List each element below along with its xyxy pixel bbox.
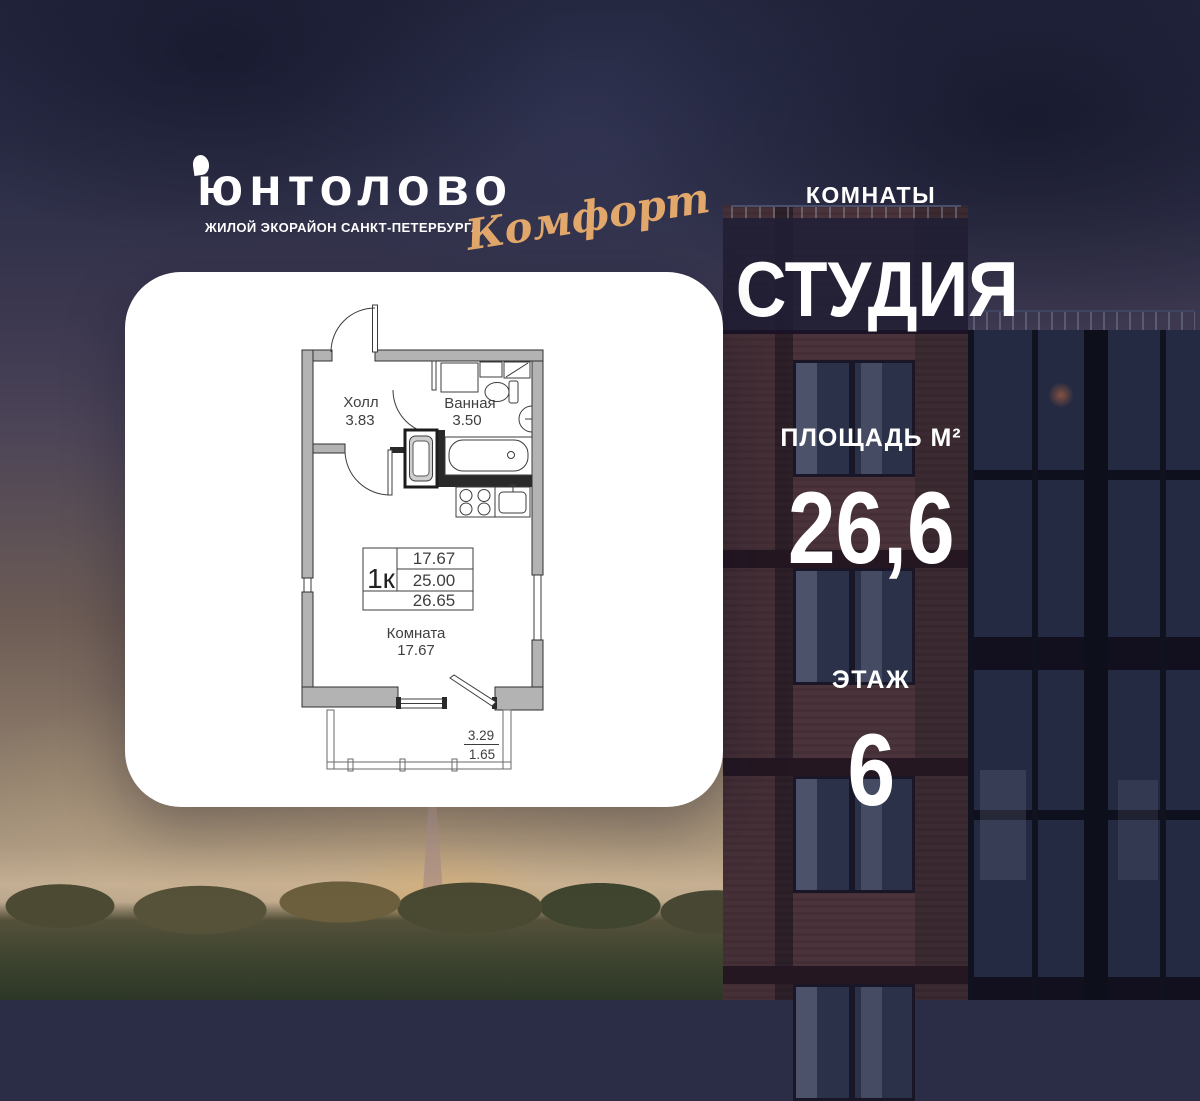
floorplan-card: Холл 3.83 Ванная 3.50 Комната 17.67 1к 1… [125,272,723,807]
lit-window-light [1046,382,1076,408]
brand-tagline: ЖИЛОЙ ЭКОРАЙОН САНКТ-ПЕТЕРБУРГА [205,221,481,234]
floorplan-svg: Холл 3.83 Ванная 3.50 Комната 17.67 1к 1… [125,272,723,807]
window [793,360,915,477]
kitchen-stove [456,487,495,517]
area-value-text: 26,6 [788,477,955,579]
area-main: 25.00 [413,571,456,590]
entrance-door [331,305,378,352]
floor-slab [723,966,968,984]
hall-area: 3.83 [345,412,374,429]
room-label: Комната [387,625,446,642]
bathroom-door [393,361,437,434]
bath-label: Ванная [444,395,495,412]
balcony-area: 1.65 [469,747,495,762]
area-total: 26.65 [413,591,456,610]
rooms-value: СТУДИЯ [720,250,1022,328]
balcony-length: 3.29 [468,728,494,743]
bathtub [445,437,532,475]
washing-machine [405,430,437,487]
window [793,984,915,1101]
rooms-label: КОМНАТЫ [720,184,1022,207]
floor-label: ЭТАЖ [720,668,1022,693]
toilet-tank [509,381,518,403]
area-living: 17.67 [413,549,456,568]
area-value: 26,6 [720,477,1022,579]
tree-line [0,880,745,1000]
kitchen-sink [495,485,530,517]
floor-value: 6 [720,719,1022,821]
brand-title: юнтолово [197,160,513,214]
room-door [345,450,392,495]
area-label: ПЛОЩАДЬ М² [720,426,1022,451]
floor-value-text: 6 [847,719,895,821]
shelf [480,362,502,377]
window-curtain [1118,780,1158,880]
room-area: 17.67 [397,642,435,659]
glass-tower [968,310,1200,1000]
rooms-value-text: СТУДИЯ [736,250,1019,328]
unit-type: 1к [367,563,396,594]
bath-cabinet [441,363,478,392]
hall-label: Холл [343,394,378,411]
bath-area: 3.50 [452,412,481,429]
balcony-door-open [450,675,496,706]
